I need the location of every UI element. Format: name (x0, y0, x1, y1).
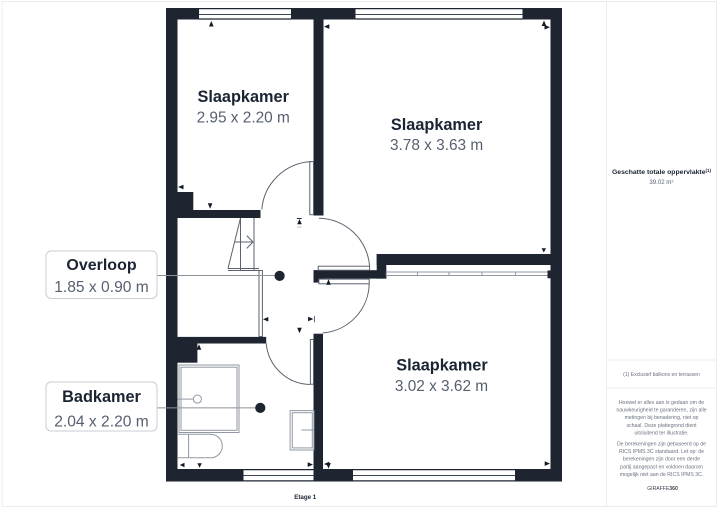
svg-text:Slaapkamer: Slaapkamer (391, 116, 483, 134)
svg-text:Etage 1: Etage 1 (294, 494, 317, 501)
svg-text:1.85 x 0.90 m: 1.85 x 0.90 m (54, 279, 148, 296)
svg-text:RICS IPMS 3C standaard. Let op: RICS IPMS 3C standaard. Let op: de (619, 449, 704, 455)
svg-text:Overloop: Overloop (66, 257, 136, 274)
svg-text:Badkamer: Badkamer (62, 388, 141, 406)
svg-text:schaal. Deze plattegrond dient: schaal. Deze plattegrond dient (626, 423, 697, 429)
svg-text:berekeningen zijn door een der: berekeningen zijn door een derde (623, 457, 700, 463)
svg-text:39.02 m2: 39.02 m2 (649, 179, 674, 187)
svg-text:2.04 x 2.20 m: 2.04 x 2.20 m (54, 414, 148, 431)
svg-text:Slaapkamer: Slaapkamer (396, 357, 488, 375)
svg-text:partij aangepast en voldoen da: partij aangepast en voldoen daarom (620, 464, 703, 470)
svg-text:Slaapkamer: Slaapkamer (197, 88, 289, 106)
svg-text:Hoewel er alles aan is gedaan: Hoewel er alles aan is gedaan om de (619, 400, 704, 406)
svg-text:3.78 x 3.63 m: 3.78 x 3.63 m (390, 137, 483, 154)
svg-text:(1) Exclusief balkons en terra: (1) Exclusief balkons en terrassen (623, 372, 700, 378)
svg-text:2.95 x 2.20 m: 2.95 x 2.20 m (197, 110, 290, 127)
svg-text:3.02 x 3.62 m: 3.02 x 3.62 m (395, 378, 488, 395)
svg-text:Geschatte totale oppervlakte(1: Geschatte totale oppervlakte(1) (612, 168, 712, 176)
svg-text:De berekeningen zijn gebaseerd: De berekeningen zijn gebaseerd op de (617, 441, 706, 447)
svg-text:uitsluitend ter illustratie.: uitsluitend ter illustratie. (634, 431, 688, 437)
svg-text:mogelijk niet aan de RICS IPMS: mogelijk niet aan de RICS IPMS 3C. (620, 472, 704, 478)
svg-text:GIRAFFE360: GIRAFFE360 (647, 486, 678, 492)
svg-text:nauwkeurigheid te garanderen,: nauwkeurigheid te garanderen, zijn alle (616, 408, 706, 414)
svg-text:metingen bij benadering, niet: metingen bij benadering, niet op (625, 415, 699, 421)
